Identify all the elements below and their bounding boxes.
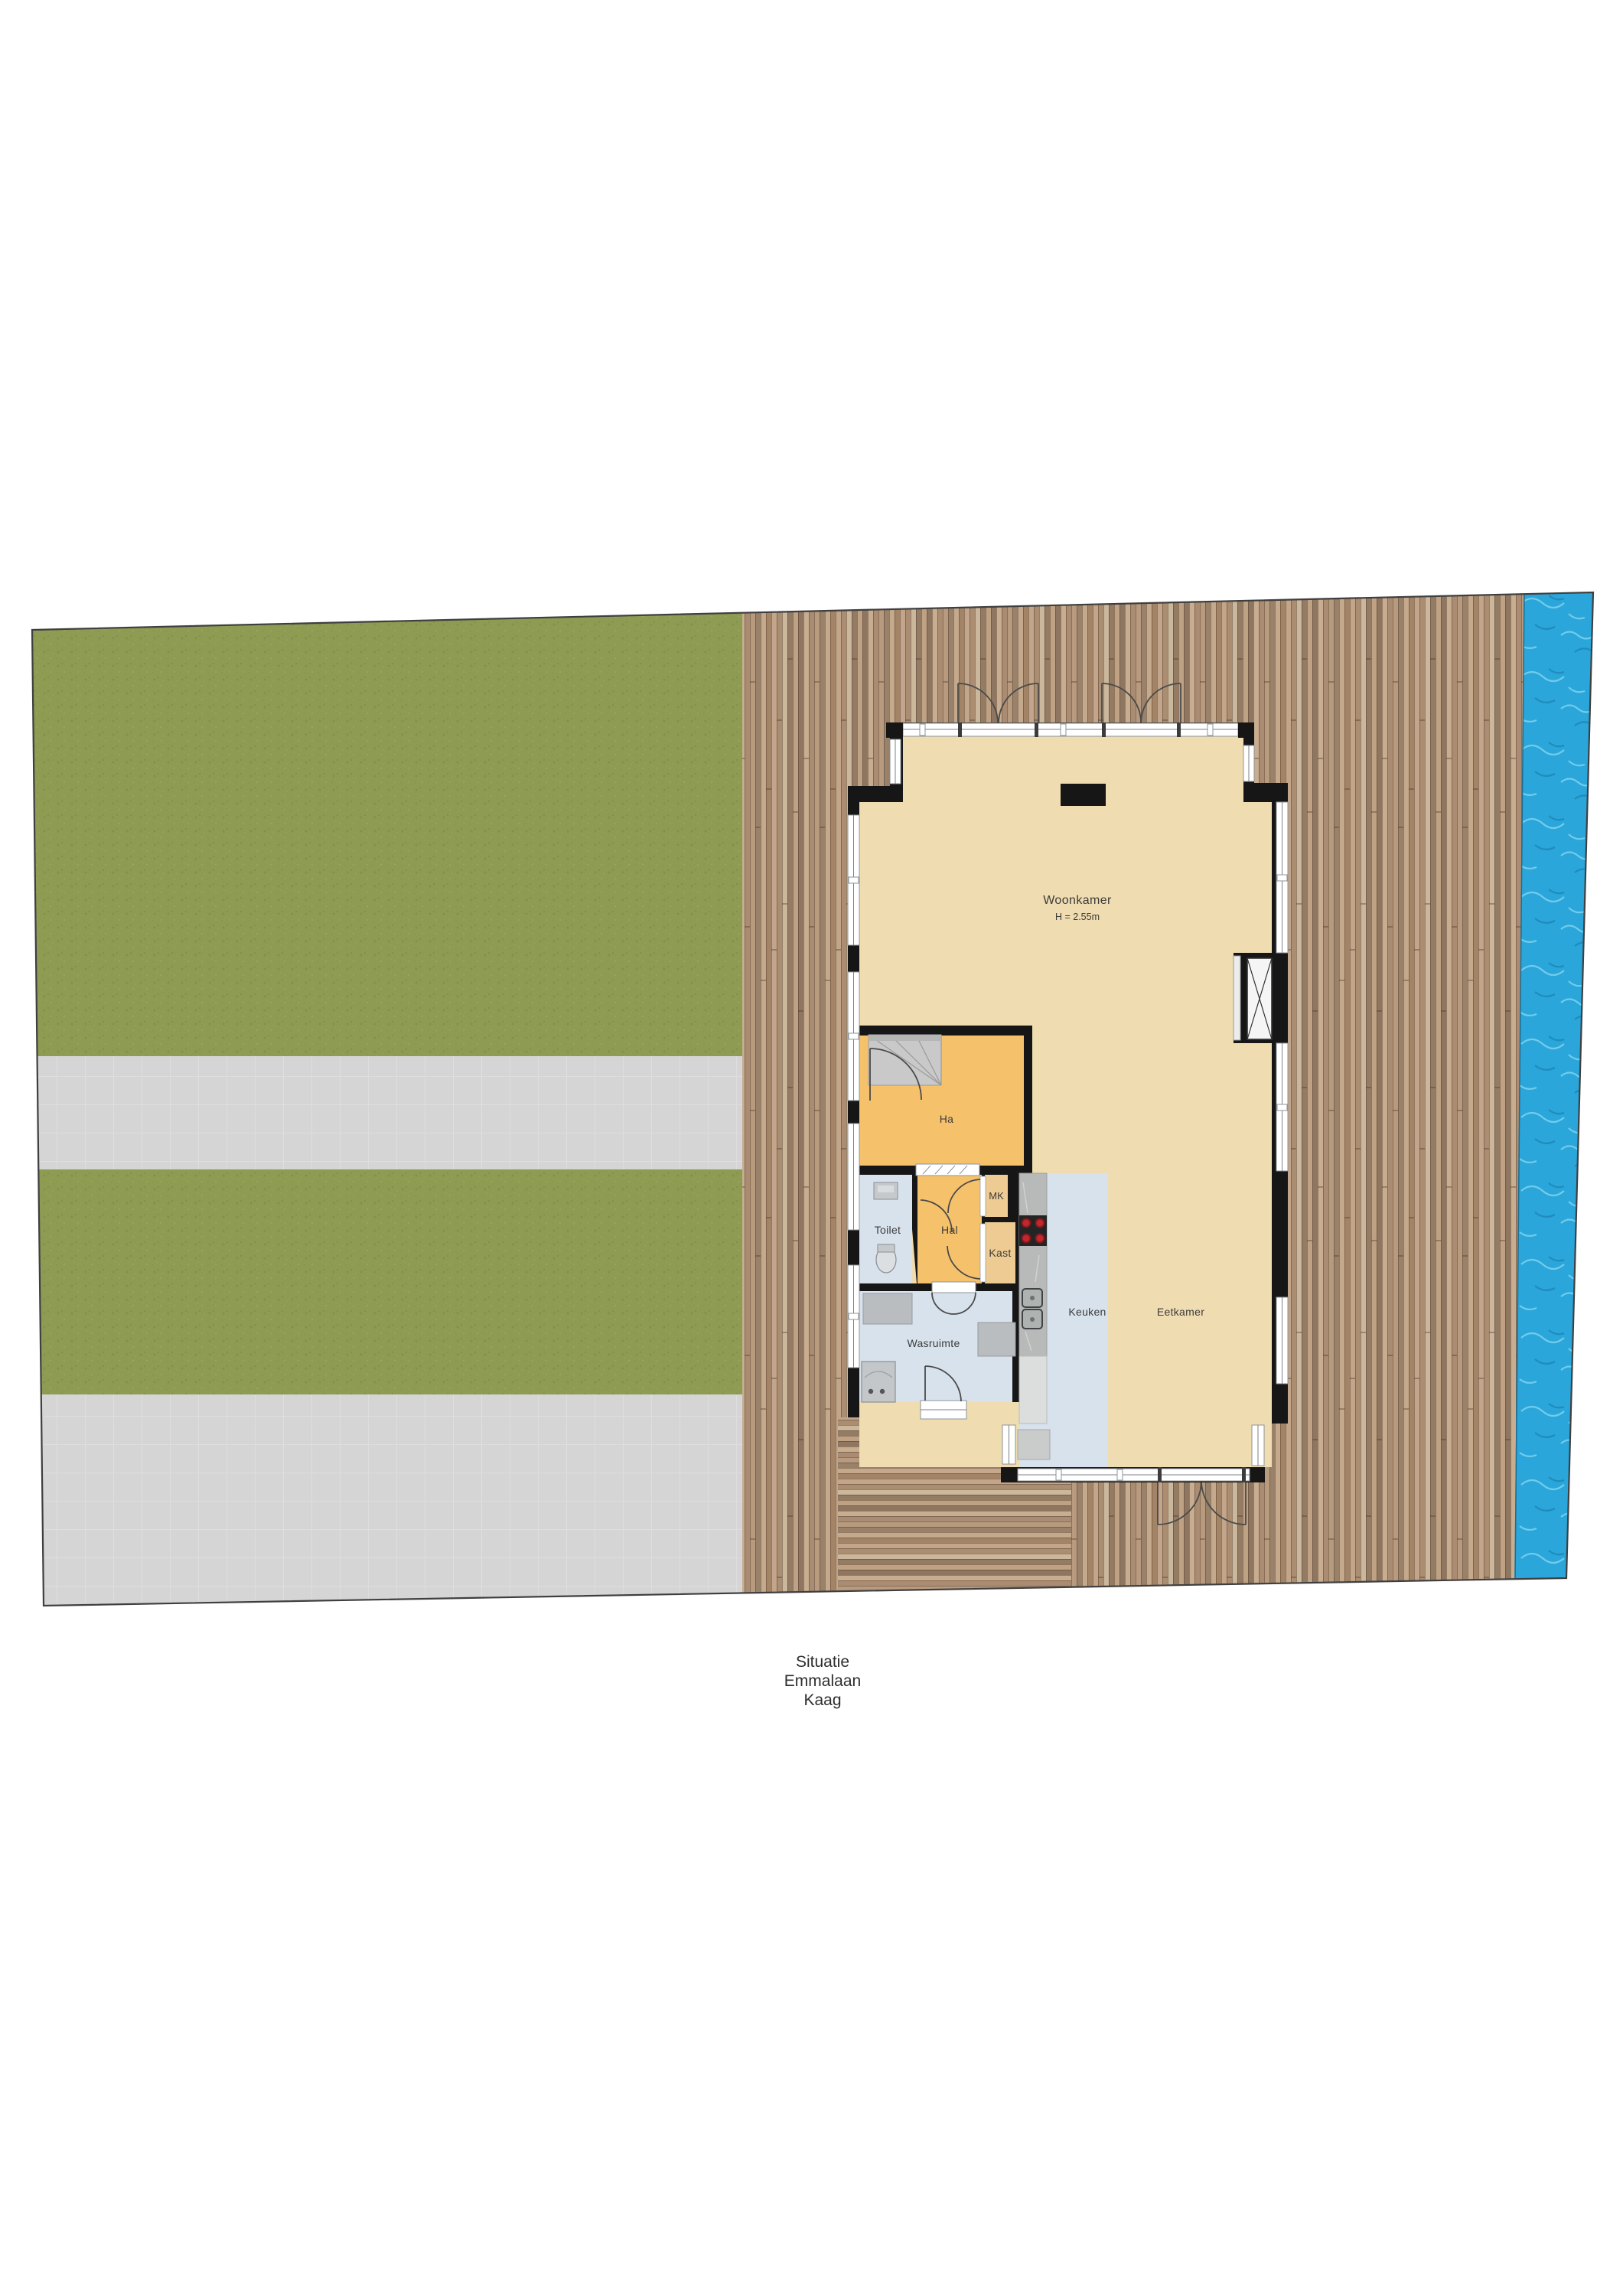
paved-path-upper: [15, 1056, 742, 1169]
window-bottom-facade: [1018, 1467, 1250, 1482]
room-label-kast: Kast: [989, 1247, 1011, 1259]
paved-path-lower: [15, 1394, 742, 1616]
stove-icon: [1019, 1215, 1047, 1246]
stairs: [869, 1035, 941, 1085]
room-label-keuken: Keuken: [1068, 1306, 1106, 1318]
situation-plan-drawing: Woonkamer H = 2.55m Ha Toilet Hal MK Kas…: [0, 0, 1623, 2296]
caption-situatie: Situatie: [796, 1653, 849, 1671]
wall-corner-top-left: [886, 722, 903, 738]
wall-woonkamer-ha: [849, 1026, 1032, 1035]
caption: Situatie Emmalaan Kaag: [784, 1653, 861, 1709]
room-label-ha: Ha: [940, 1113, 954, 1125]
room-label-eetkamer: Eetkamer: [1157, 1306, 1204, 1318]
situation-plan-page: Woonkamer H = 2.55m Ha Toilet Hal MK Kas…: [0, 0, 1623, 2296]
room-label-mk: MK: [989, 1190, 1004, 1202]
windows-left-wall: [848, 815, 859, 1368]
kitchen-counter: [1018, 1173, 1050, 1459]
washing-machine-icon: [862, 1362, 895, 1402]
window-top-facade: [903, 722, 1238, 737]
caption-emmalaan: Emmalaan: [784, 1672, 861, 1690]
caption-kaag: Kaag: [803, 1691, 841, 1709]
room-label-woonkamer: Woonkamer: [1043, 894, 1112, 907]
room-label-toilet: Toilet: [875, 1224, 901, 1236]
house: Woonkamer H = 2.55m Ha Toilet Hal MK Kas…: [848, 683, 1288, 1525]
water-area: [1514, 582, 1615, 1592]
fireplace-block: [1061, 784, 1106, 806]
wall-ha-eetkamer: [1024, 1026, 1032, 1173]
window-seat-box: [1234, 953, 1288, 1043]
room-label-wasruimte: Wasruimte: [907, 1337, 960, 1349]
room-height-label: H = 2.55m: [1055, 912, 1100, 922]
wall-corner-top-right: [1238, 722, 1254, 738]
room-label-hal: Hal: [941, 1224, 958, 1236]
